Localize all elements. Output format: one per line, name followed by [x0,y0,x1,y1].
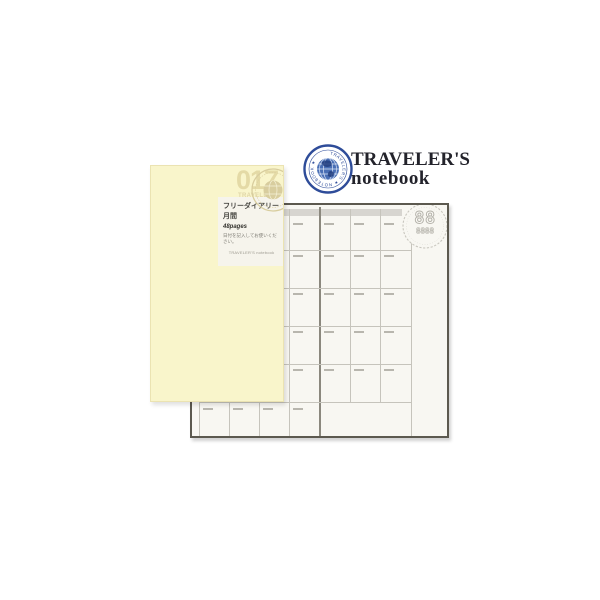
date-dash [354,255,364,257]
date-dash [293,331,303,333]
cover-globe-icon [263,181,283,200]
brand-wordmark-line1: TRAVELER'S [351,150,470,169]
date-dash [293,255,303,257]
date-dash [384,255,394,257]
month-placeholder: 88 [414,209,435,229]
globe-icon [317,158,339,180]
year-placeholder: 8888 [416,227,435,236]
month-year-stamp-icon: 88 8888 [401,203,449,250]
grid-line [380,209,381,402]
date-dash [354,293,364,295]
label-note: 日付を記入してお使いください。 [223,233,280,244]
brand-wordmark-line2: notebook [351,169,470,188]
date-dash [324,293,334,295]
date-dash [384,369,394,371]
product-image: TRAVELER'S ★ NOTEBOOK ★ TRAVELER'S noteb… [0,0,600,600]
label-footer: TRAVELER'S notebook [223,250,280,255]
date-dash [293,293,303,295]
date-dash [324,369,334,371]
brand-wordmark: TRAVELER'S notebook [351,150,470,188]
grid-line [350,209,351,402]
date-dash [324,223,334,225]
date-dash [293,223,303,225]
date-dash [203,408,213,410]
cover-stamp-icon [250,167,284,213]
date-dash [293,408,303,410]
date-dash [233,408,243,410]
date-dash [384,293,394,295]
date-dash [384,223,394,225]
date-dash [324,331,334,333]
date-dash [324,255,334,257]
label-pages: 48pages [223,224,280,230]
travelers-badge-icon: TRAVELER'S ★ NOTEBOOK ★ [302,142,354,196]
label-subtitle: 月間 [223,213,280,221]
date-dash [354,223,364,225]
date-dash [293,369,303,371]
grid-line [199,402,411,403]
date-dash [263,408,273,410]
date-dash [354,369,364,371]
refill-cover: 017 TRAVELER'S notebook フリーダイアリー 月間 48pa… [150,165,284,402]
date-dash [354,331,364,333]
date-dash [384,331,394,333]
